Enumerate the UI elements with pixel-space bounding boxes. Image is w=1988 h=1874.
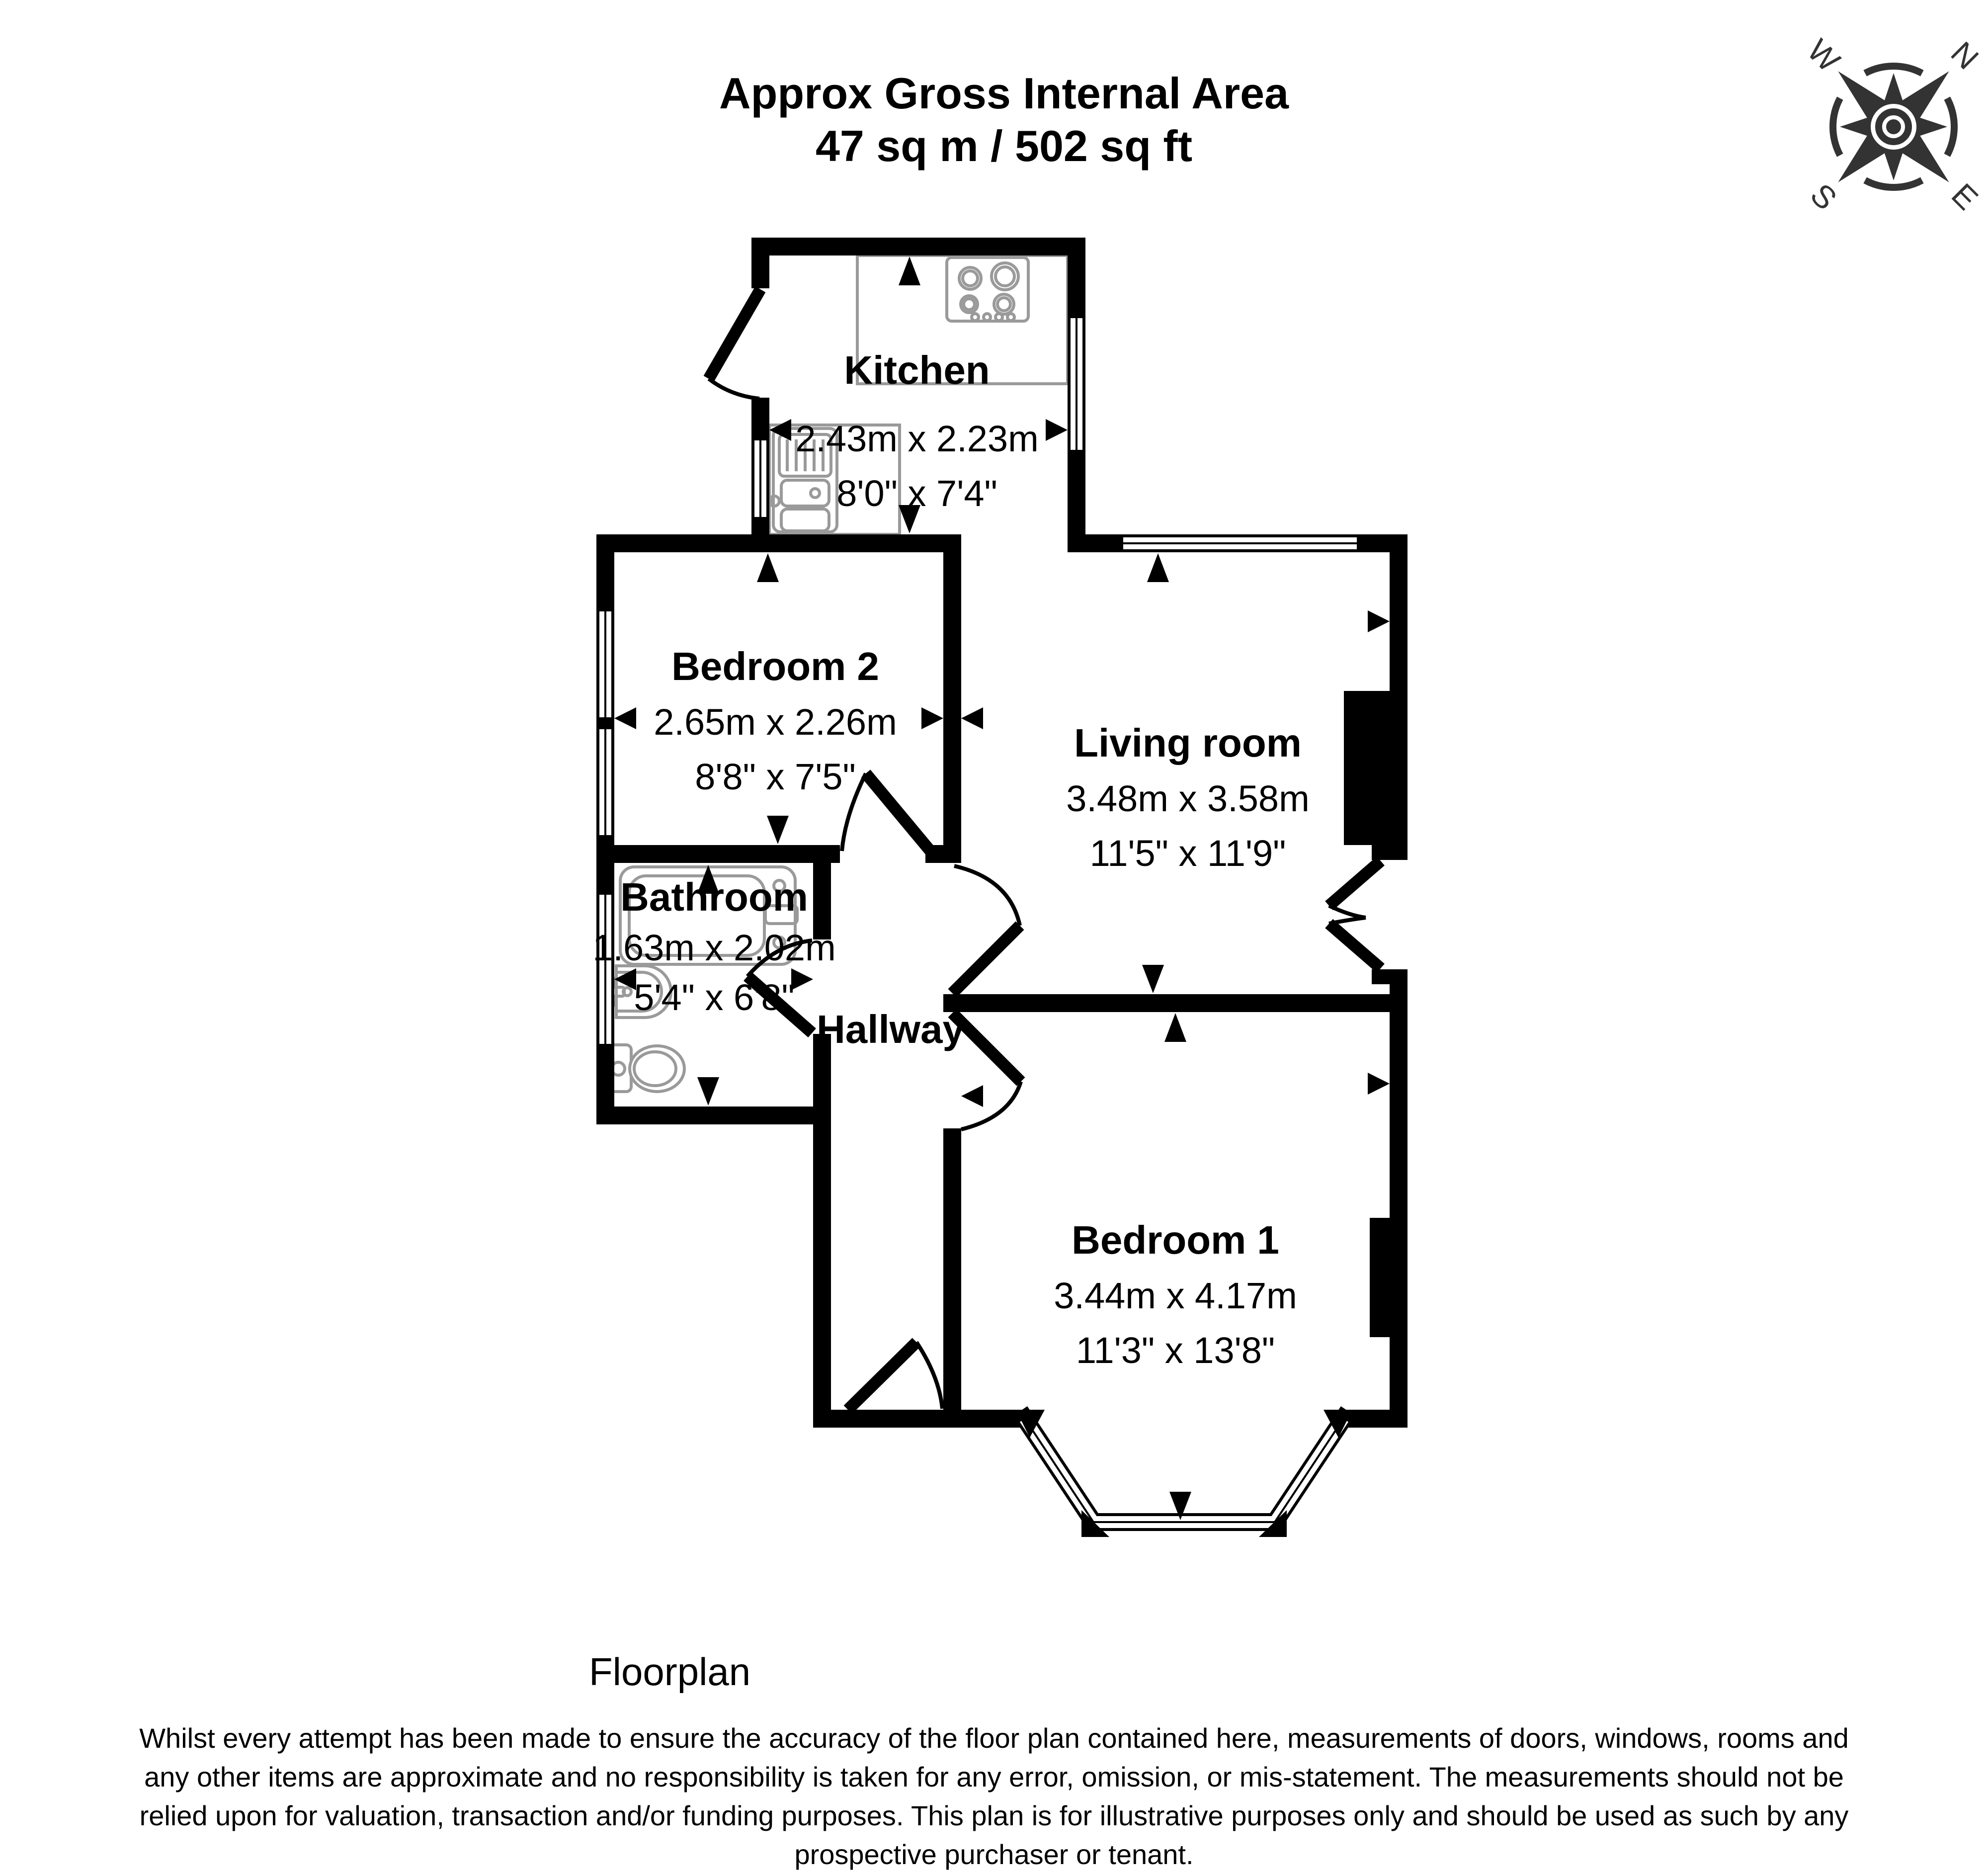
wall-segment (596, 845, 840, 863)
wall-segment (596, 1107, 831, 1124)
kitchen-dim-metric: 2.43m x 2.23m (795, 418, 1038, 459)
compass-letter-s: S (1804, 176, 1844, 217)
bedroom2-dim-metric: 2.65m x 2.26m (654, 701, 897, 743)
wall-segment (943, 1128, 961, 1428)
title-line-1: Approx Gross Internal Area (719, 69, 1289, 118)
bedroom1-arrow-west (961, 1085, 983, 1107)
plan-caption: Floorplan (589, 1649, 750, 1695)
bathroom-name: Bathroom (620, 875, 808, 919)
disclaimer-text: Whilst every attempt has been made to en… (0, 1719, 1988, 1874)
living-room-dim-imperial: 11'5" x 11'9" (1090, 833, 1286, 874)
compass-arc-left (1833, 98, 1840, 156)
bedroom2-arrow-east (921, 707, 943, 729)
compass-letter-n: N (1944, 35, 1986, 77)
bathroom-dim-metric: 1.63m x 2.02m (592, 927, 835, 968)
kitchen-arrow-north (899, 256, 920, 285)
living-room-french-doors (1329, 861, 1381, 968)
wall-segment (943, 534, 961, 863)
bedroom1-arrow-east (1368, 1073, 1390, 1095)
bay-window (1016, 1410, 1352, 1537)
disclaimer-line: any other items are approximate and no r… (0, 1758, 1988, 1796)
bedroom2-arrow-west (614, 707, 636, 729)
bedroom1-dim-metric: 3.44m x 4.17m (1054, 1275, 1297, 1316)
living-arrow-east (1368, 610, 1390, 632)
living-room-door (952, 866, 1020, 993)
kitchen-name: Kitchen (844, 348, 990, 392)
disclaimer-line: prospective purchaser or tenant. (0, 1835, 1988, 1874)
wall-segment (813, 1410, 943, 1428)
kitchen-dim-imperial: 8'0" x 7'4" (836, 473, 997, 514)
bedroom2-label: Bedroom 2 2.65m x 2.26m 8'8" x 7'5" (654, 644, 897, 797)
kitchen-arrow-east (1046, 419, 1068, 441)
hallway-name: Hallway (817, 1007, 965, 1051)
page-title: Approx Gross Internal Area 47 sq m / 502… (719, 69, 1289, 170)
compass-arc-bottom (1865, 180, 1922, 187)
wall-segment (751, 238, 1085, 256)
compass-arc-top (1865, 66, 1922, 73)
bedroom1-dim-imperial: 11'3" x 13'8" (1076, 1330, 1275, 1371)
entrance-door (709, 289, 760, 399)
bedroom2-dim-imperial: 8'8" x 7'5" (695, 756, 856, 797)
disclaimer-line: Whilst every attempt has been made to en… (0, 1719, 1988, 1758)
living-arrow-south (1142, 965, 1164, 993)
wall-segment (813, 1124, 831, 1428)
wall-segment (751, 238, 769, 288)
stove-icon (947, 257, 1028, 321)
bedroom2-window (596, 611, 614, 835)
wall-segment (1390, 984, 1408, 1410)
chimney-breast-bedroom1 (1370, 1218, 1408, 1337)
living-room-name: Living room (1074, 721, 1302, 765)
compass-hub-dot (1886, 119, 1901, 134)
living-room-dim-metric: 3.48m x 3.58m (1066, 778, 1309, 819)
compass-letter-w: W (1801, 32, 1847, 79)
living-arrow-west (961, 707, 983, 729)
toilet-icon (607, 1045, 684, 1092)
compass-letter-e: E (1945, 176, 1985, 217)
living-arrow-north (1147, 553, 1169, 582)
hallway-label: Hallway (817, 1007, 965, 1051)
wall-segment (943, 994, 1408, 1012)
window-mullion (596, 717, 614, 729)
living-room-label: Living room 3.48m x 3.58m 11'5" x 11'9" (1066, 721, 1309, 874)
bathroom-arrow-south (697, 1077, 719, 1106)
floorplan-diagram: Approx Gross Internal Area 47 sq m / 502… (0, 0, 1988, 1874)
bedroom1-label: Bedroom 1 3.44m x 4.17m 11'3" x 13'8" (1054, 1218, 1297, 1371)
wall-segment (596, 534, 961, 552)
bedroom2-arrow-south (767, 816, 789, 844)
compass-rose: N E S W (1801, 32, 1986, 217)
hallway-door (848, 1342, 942, 1410)
bathroom-dim-imperial: 5'4" x 6'8" (634, 977, 795, 1018)
bedroom1-name: Bedroom 1 (1072, 1218, 1279, 1262)
wall-segment (1068, 238, 1085, 318)
bedroom2-name: Bedroom 2 (671, 644, 879, 688)
disclaimer-line: relied upon for valuation, transaction a… (0, 1796, 1988, 1835)
bedroom2-arrow-north (757, 553, 779, 582)
title-line-2: 47 sq m / 502 sq ft (816, 121, 1192, 170)
compass-arc-right (1947, 98, 1954, 156)
chimney-breast-living (1344, 691, 1408, 845)
bedroom1-arrow-north (1164, 1013, 1186, 1042)
